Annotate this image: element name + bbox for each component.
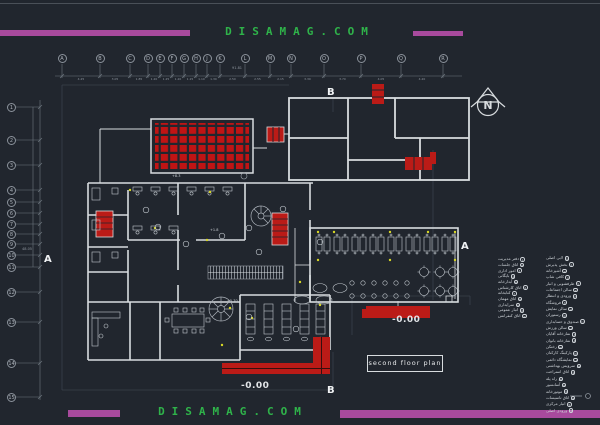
- ramp-red: [222, 337, 330, 374]
- upper-right-block-walls: [289, 98, 469, 180]
- legend-number-badge: 9: [516, 303, 521, 308]
- grid-bubble-col-E: E: [156, 54, 165, 63]
- legend-number-badge: 23: [571, 396, 576, 401]
- skylight-grid: [151, 119, 253, 179]
- legend-label: اتاق جلسات: [498, 263, 518, 267]
- grid-bubble-col-D: D: [144, 54, 153, 63]
- legend-left-item: 11اتاق کنفرانس: [498, 314, 548, 319]
- legend-right-item: 5ظرفشویی و انبار: [546, 281, 594, 286]
- legend-number-badge: 5: [514, 280, 519, 285]
- legend-label: امور اداری: [498, 269, 516, 273]
- legend-right-item: 7ورودی و انتظار: [546, 294, 594, 299]
- legend-number-badge: 11: [580, 319, 585, 324]
- legend-number-badge: 14: [572, 338, 577, 343]
- dining-tables: [313, 234, 460, 298]
- legend-label: پارکینگ کارکنان: [546, 351, 572, 355]
- section-marker-a-right: A: [461, 241, 469, 252]
- grid-bubble-row-12: 12: [7, 288, 16, 297]
- legend-number-badge: 24: [567, 402, 572, 407]
- legend-label: اتاق کنفرانس: [498, 314, 520, 318]
- legend-label: اتاق کارشناس: [498, 286, 522, 290]
- dim-number: 1.20: [175, 77, 182, 81]
- level-hall: +1.8: [210, 228, 219, 232]
- legend-left-item: 4بایگانی: [498, 274, 548, 279]
- grid-bubble-row-14: 14: [7, 359, 16, 368]
- grid-bubble-col-R: R: [439, 54, 448, 63]
- legend-right-item: 14نمازخانه بانوان: [546, 338, 594, 343]
- legend-right-item: 25ورودی اصلی: [546, 408, 594, 413]
- legend-label: سالن ورزش: [546, 326, 567, 330]
- grid-bubble-col-G: G: [180, 54, 189, 63]
- legend-number-badge: 9: [568, 307, 573, 312]
- grid-bubble-row-1: 1: [7, 103, 16, 112]
- legend-number-badge: 6: [523, 285, 528, 290]
- legend-number-badge: 2: [569, 262, 574, 267]
- legend-right-item: 23اتاق تاسیسات: [546, 396, 594, 401]
- legend-number-badge: 17: [573, 358, 578, 363]
- legend-label: نمازخانه بانوان: [546, 339, 570, 343]
- grid-bubble-row-5: 5: [7, 198, 16, 207]
- legend-label: راه پله: [546, 377, 557, 381]
- legend-number-badge: 20: [559, 377, 564, 382]
- section-marker-b-bottom: B: [327, 385, 335, 396]
- legend-label: سالن نمایش: [546, 307, 567, 311]
- legend-number-badge: 19: [571, 370, 576, 375]
- legend-number-badge: 10: [562, 313, 567, 318]
- legend-label: اتاق مهمان: [498, 297, 516, 301]
- legend-label: ظرفشویی و انبار: [546, 282, 574, 286]
- legend-number-badge: 7: [573, 294, 578, 299]
- stair-run-hatch: [208, 266, 283, 279]
- legend-label: ورودی اصلی: [546, 409, 567, 413]
- legend-label: آبدارخانه: [498, 280, 512, 284]
- legend-label: موتورخانه: [546, 390, 562, 394]
- legend-label: انبار عمومی: [498, 308, 518, 312]
- lower-left-furniture: [92, 308, 210, 346]
- legend-right-item: 22موتورخانه: [546, 389, 594, 394]
- legend-label: ورودی و انتظار: [546, 294, 571, 298]
- legend-right-item: 15رختکن: [546, 345, 594, 350]
- legend-label: نمایشگاه دائمی: [546, 358, 572, 362]
- legend-right-item: 20راه پله: [546, 377, 594, 382]
- legend-right-item: 8فروشگاه: [546, 300, 594, 305]
- level-roof: +8.3: [172, 174, 181, 178]
- legend-label: صندوق و حسابداری: [546, 320, 579, 324]
- legend-number-badge: 3: [517, 268, 522, 273]
- legend-column-left: 1دفتر مدیریت2اتاق جلسات3امور اداری4بایگا…: [498, 257, 548, 318]
- legend-label: نمازخانه آقایان: [546, 332, 570, 336]
- legend-right-item: 16پارکینگ کارکنان: [546, 351, 594, 356]
- red-wall-hatches: [267, 84, 436, 170]
- legend-label: آشپزخانه: [546, 269, 561, 273]
- legend-label: کافی شاپ: [546, 275, 564, 279]
- legend-label: لابی اصلی: [546, 256, 563, 260]
- grid-bubble-col-O: O: [320, 54, 329, 63]
- dim-number: 1.25: [163, 77, 170, 81]
- grid-bubble-col-H: H: [192, 54, 201, 63]
- legend-right-item: 3آشپزخانه: [546, 269, 594, 274]
- grid-bubble-row-7: 7: [7, 220, 16, 229]
- legend-number-badge: 12: [568, 326, 573, 331]
- legend-number-badge: 8: [518, 297, 523, 302]
- legend-right-item: 6سالن اجتماعات: [546, 288, 594, 293]
- dim-number: 2.15: [277, 77, 284, 81]
- legend-number-badge: 1: [520, 257, 525, 262]
- level-bottom: -0.00: [241, 381, 269, 391]
- legend-left-item: 10انبار عمومی: [498, 308, 548, 313]
- legend-number-badge: 7: [512, 291, 517, 296]
- grid-bubble-col-L: L: [241, 54, 250, 63]
- legend-number-badge: 2: [520, 263, 525, 268]
- legend-number-badge: 8: [562, 300, 567, 305]
- legend-right-item: 1لابی اصلی: [546, 256, 594, 261]
- legend-left-item: 9سرایداری: [498, 303, 548, 308]
- legend-right-item: 11صندوق و حسابداری: [546, 319, 594, 324]
- legend-left-item: 7کتابخانه: [498, 291, 548, 296]
- legend-number-badge: 18: [577, 364, 582, 369]
- legend-number-badge: 11: [522, 314, 527, 319]
- grid-bubble-row-10: 10: [7, 251, 16, 260]
- dim-number: 3.70: [339, 77, 346, 81]
- legend-right-item: 9سالن نمایش: [546, 307, 594, 312]
- grid-bubble-col-N: N: [287, 54, 296, 63]
- grid-bubble-row-15: 15: [7, 393, 16, 402]
- legend-label: سرایداری: [498, 303, 514, 307]
- legend-right-item: 12سالن ورزش: [546, 326, 594, 331]
- title-box: second floor plan: [367, 355, 443, 372]
- north-arrow-icon: N: [471, 88, 505, 116]
- legend-label: سالن اجتماعات: [546, 288, 572, 292]
- legend-number-badge: 10: [520, 308, 525, 313]
- legend-label: اتاق استراحت: [546, 370, 569, 374]
- grid-bubble-row-11: 11: [7, 263, 16, 272]
- spiral-stair: [251, 206, 271, 226]
- legend-label: بایگانی: [498, 274, 509, 278]
- legend-left-item: 6اتاق کارشناس: [498, 285, 548, 290]
- legend-label: اتاق تاسیسات: [546, 396, 569, 400]
- legend-right-item: 2بخش پذیرش: [546, 262, 594, 267]
- legend-left-item: 8اتاق مهمان: [498, 297, 548, 302]
- dim-number: 4.25: [78, 77, 85, 81]
- legend-number-badge: 3: [562, 269, 567, 274]
- dim-number: 1.30: [210, 77, 217, 81]
- legend-right-item: 13نمازخانه آقایان: [546, 332, 594, 337]
- grid-bubble-row-6: 6: [7, 209, 16, 218]
- grid-bubble-row-8: 8: [7, 230, 16, 239]
- dim-number: 2.50: [229, 77, 236, 81]
- legend-right-item: 18سرویس بهداشتی: [546, 364, 594, 369]
- dim-number: 1.15: [187, 77, 194, 81]
- dim-number: 3.05: [112, 77, 119, 81]
- section-marker-a-left: A: [44, 254, 52, 265]
- legend-number-badge: 4: [565, 275, 570, 280]
- stair-red-left: [96, 211, 113, 237]
- left-dimension-line: [33, 100, 40, 400]
- cad-sheet: DISAMAG.COM DISAMAG.COM: [0, 0, 600, 425]
- legend-left-item: 2اتاق جلسات: [498, 263, 548, 268]
- level-right: -0.00: [392, 315, 420, 325]
- legend-label: سرویس بهداشتی: [546, 364, 575, 368]
- grid-bubble-row-2: 2: [7, 136, 16, 145]
- grid-bubble-row-13: 13: [7, 318, 16, 327]
- grid-bubble-row-3: 3: [7, 161, 16, 170]
- legend-label: دفتر مدیریت: [498, 257, 519, 261]
- legend-label: کتابخانه: [498, 291, 511, 295]
- legend-label: آسانسور: [546, 383, 560, 387]
- legend-right-item: 24انبار مرکزی: [546, 402, 594, 407]
- dim-number: 4.05: [378, 77, 385, 81]
- grid-bubble-col-J: J: [203, 54, 212, 63]
- legend-number-badge: 1: [565, 256, 570, 261]
- legend-label: انبار مرکزی: [546, 402, 565, 406]
- dim-number: 1.20: [151, 77, 158, 81]
- legend-number-badge: 13: [572, 332, 577, 337]
- legend-number-badge: 15: [558, 345, 563, 350]
- legend-label: بخش پذیرش: [546, 263, 567, 267]
- legend-column-right: 1لابی اصلی2بخش پذیرش3آشپزخانه4کافی شاپ5ظ…: [546, 256, 594, 413]
- total-dimension: 91.81: [232, 66, 242, 70]
- dim-number: 1.10: [198, 77, 205, 81]
- property-boundary: [62, 85, 470, 390]
- dim-number: 3.30: [304, 77, 311, 81]
- dim-number: 1.85: [136, 77, 143, 81]
- level-stair: +5.70: [227, 299, 238, 303]
- legend-number-badge: 6: [573, 288, 578, 293]
- grid-bubble-col-F: F: [168, 54, 177, 63]
- legend-number-badge: 25: [569, 408, 574, 413]
- legend-right-item: 17نمایشگاه دائمی: [546, 358, 594, 363]
- grid-bubble-col-P: P: [357, 54, 366, 63]
- left-dimension: 48.05: [22, 247, 32, 251]
- legend-right-item: 19اتاق استراحت: [546, 370, 594, 375]
- legend-label: رختکن: [546, 345, 557, 349]
- grid-bubble-col-A: A: [58, 54, 67, 63]
- dim-number: 4.20: [419, 77, 426, 81]
- legend-right-item: 4کافی شاپ: [546, 275, 594, 280]
- legend-right-item: 21آسانسور: [546, 383, 594, 388]
- grid-bubble-col-K: K: [216, 54, 225, 63]
- grid-bubble-row-4: 4: [7, 186, 16, 195]
- grid-bubble-col-M: M: [266, 54, 275, 63]
- grid-bubble-col-C: C: [126, 54, 135, 63]
- section-marker-b-top: B: [327, 87, 335, 98]
- legend-left-item: 5آبدارخانه: [498, 280, 548, 285]
- legend-number-badge: 4: [511, 274, 516, 279]
- legend-left-item: 3امور اداری: [498, 268, 548, 273]
- legend-label: فروشگاه: [546, 301, 561, 305]
- legend-number-badge: 22: [564, 389, 569, 394]
- north-label: N: [483, 99, 492, 112]
- grid-bubble-row-9: 9: [7, 240, 16, 249]
- legend-left-item: 1دفتر مدیریت: [498, 257, 548, 262]
- grid-bubble-col-Q: Q: [397, 54, 406, 63]
- legend-number-badge: 16: [573, 351, 578, 356]
- dim-number: 2.55: [254, 77, 261, 81]
- stair-red-center: [272, 213, 288, 245]
- legend-right-item: 10رستوران: [546, 313, 594, 318]
- title-box-label: second floor plan: [368, 359, 441, 367]
- legend-number-badge: 5: [576, 281, 581, 286]
- legend-number-badge: 21: [562, 383, 567, 388]
- floor-plan-svg: N: [0, 0, 600, 425]
- legend-label: رستوران: [546, 313, 561, 317]
- grid-bubble-col-B: B: [96, 54, 105, 63]
